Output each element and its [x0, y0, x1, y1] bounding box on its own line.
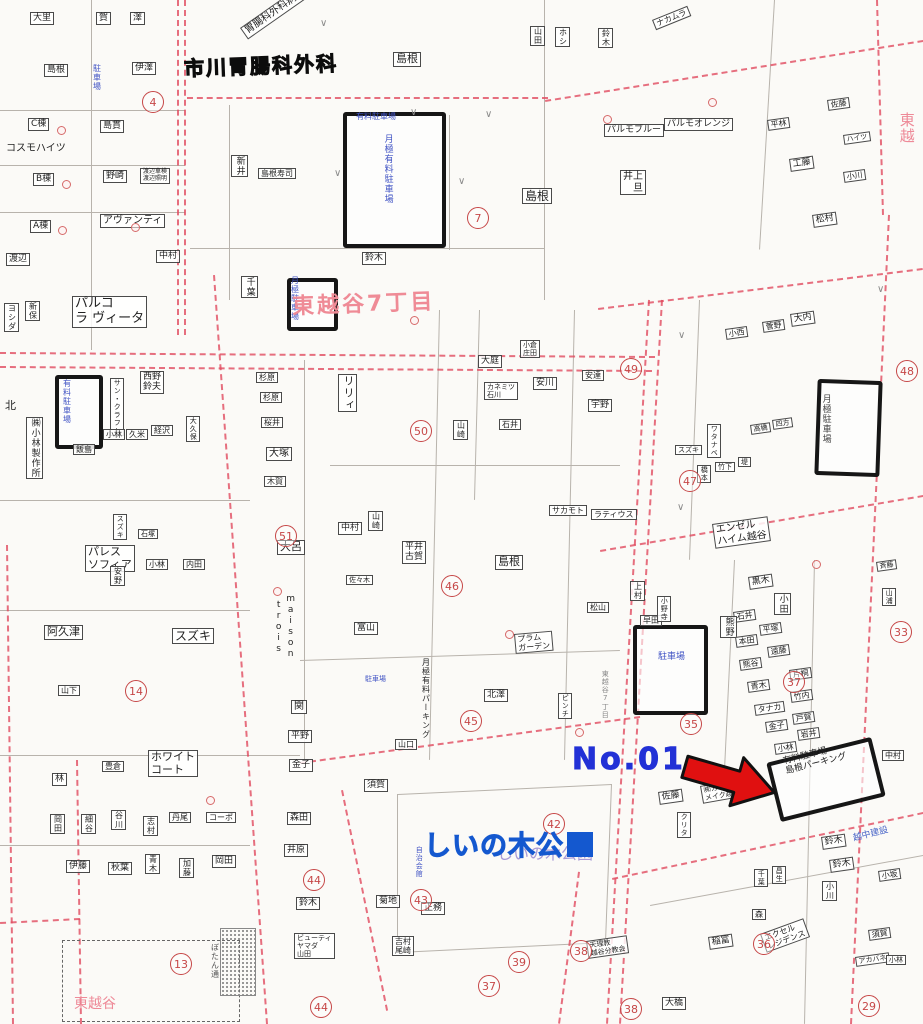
map-label: 渡辺 [6, 253, 30, 266]
minor-street-line [398, 784, 612, 795]
hydrant-symbol [206, 796, 215, 805]
map-label: 渡辺車検渡辺照明 [140, 168, 170, 184]
park-annotation-text: しいの木公 [424, 831, 564, 862]
map-label: 平野 [288, 730, 312, 743]
minor-street-line [330, 465, 620, 466]
road-dashed-line [187, 97, 548, 99]
circled-block-number: 45 [460, 710, 482, 732]
minor-street-line [0, 845, 250, 846]
map-label: 細谷 [81, 814, 96, 834]
map-label: 松山 [587, 602, 609, 613]
map-label: 安川 [533, 377, 557, 390]
map-label: 吉村尾崎 [392, 936, 414, 956]
road-dashed-line [876, 0, 884, 215]
hydrant-symbol [708, 98, 717, 107]
map-label: 丹尾 [169, 812, 191, 823]
map-label: 月極駐車場 [820, 394, 831, 444]
minor-street-line [689, 300, 700, 560]
map-label: 久米 [126, 429, 148, 440]
map-label: ラティウス [591, 509, 637, 520]
map-label: コーポ [206, 812, 236, 823]
residential-map: 大里賀澤島根伊澤駐車場島貫C棟コスモハイツB棟野崎渡辺車検渡辺照明A棟アヴァンテ… [0, 0, 923, 1024]
map-label: サン・クラフト [110, 378, 124, 436]
map-label: maison [285, 594, 296, 660]
map-label: 大久保 [186, 416, 200, 442]
map-label: サカモト [549, 505, 587, 516]
map-label: 石塚 [138, 529, 158, 539]
chevron-mark: ∨ [458, 176, 465, 187]
map-label: エンゼルハイム越谷 [712, 516, 771, 548]
map-label: ビューティヤマダ山田 [294, 933, 335, 959]
map-label: スズキ [113, 514, 127, 540]
map-label: 木賀 [264, 476, 286, 487]
chevron-mark: ∨ [877, 284, 884, 295]
map-label: プラムガーデン [514, 631, 554, 655]
map-label: リリィ [338, 374, 357, 412]
map-label: 駐車場 [92, 64, 101, 91]
map-label: カネミツ石川 [484, 382, 518, 400]
map-label: 自治会館 [415, 846, 423, 878]
map-label: ヨシダ [4, 303, 19, 332]
map-label: 島根 [522, 188, 552, 204]
road-dashed-line [0, 366, 652, 372]
map-label: 小林 [103, 429, 125, 440]
road-dashed-line [213, 275, 268, 1024]
circled-block-number: 38 [620, 998, 642, 1020]
map-label: 松村 [812, 212, 838, 228]
map-label: 関 [291, 700, 307, 714]
map-label: 月極有料パーキング [421, 658, 430, 739]
map-label: スズキ [172, 628, 214, 644]
map-label: 平林 [767, 117, 790, 131]
map-label: 中村 [338, 522, 362, 535]
minor-street-line [0, 212, 185, 213]
map-label: 中村 [156, 250, 180, 263]
minor-street-line [0, 165, 185, 166]
map-label: 山崎 [368, 511, 383, 531]
map-label: 大橋 [662, 997, 686, 1010]
map-label: trois [273, 600, 284, 655]
map-label: 菅野 [762, 319, 785, 333]
hydrant-symbol [58, 226, 67, 235]
minor-street-line [0, 500, 250, 501]
map-label: 鈴木 [362, 252, 386, 265]
circled-block-number: 46 [441, 575, 463, 597]
hydrant-symbol [812, 560, 821, 569]
map-label: 山田 [530, 26, 545, 46]
map-label: 島根 [44, 64, 68, 77]
road-dashed-line [0, 352, 655, 358]
map-label: タナカ [754, 701, 785, 717]
map-label: ホワイトコート [148, 750, 198, 777]
map-label: 富山 [354, 622, 378, 635]
map-label: 須賀 [868, 927, 891, 941]
red-arrow-icon [674, 739, 786, 820]
map-label: 谷川 [111, 810, 126, 830]
map-label: 桜井 [261, 417, 283, 428]
circled-block-number: 43 [410, 889, 432, 911]
map-label: ぼたん通 [210, 943, 219, 979]
hydrant-symbol [410, 316, 419, 325]
map-label: スズキ [675, 445, 702, 455]
minor-street-line [300, 650, 620, 661]
map-label: 金子 [289, 759, 313, 772]
circled-block-number: 13 [170, 953, 192, 975]
map-label: パルモブルー [604, 124, 664, 137]
map-label: 高橋 [750, 422, 771, 435]
map-label: 鈴木 [829, 857, 855, 873]
map-label: 東越谷 [74, 996, 116, 1013]
map-label: 岡田 [212, 855, 236, 868]
map-label: クリタ [677, 812, 691, 838]
map-label: 佐藤 [827, 97, 850, 111]
map-label: 山崎 [453, 420, 468, 440]
chevron-mark: ∨ [334, 168, 341, 179]
map-label: 鈴木 [296, 897, 320, 910]
minor-street-line [449, 115, 450, 250]
map-label: 杉原 [260, 392, 282, 403]
map-label: 宇野 [588, 399, 612, 412]
parking-lot-outline [343, 112, 446, 248]
map-label: 堤 [738, 457, 751, 467]
map-label: 山浦 [882, 588, 896, 606]
hydrant-symbol [603, 115, 612, 124]
circled-block-number: 33 [890, 621, 912, 643]
minor-street-line [474, 310, 480, 500]
map-label: 井原 [284, 844, 308, 857]
clinic-annotation: 市川胃腸科外科 [184, 47, 339, 81]
map-label: 鈴木 [821, 834, 847, 850]
no01-marker-label: No.01 [572, 742, 686, 777]
map-label: 阿久津 [44, 625, 83, 640]
map-label: 森田 [287, 812, 311, 825]
map-label: 大内 [790, 311, 816, 327]
circled-block-number: 44 [310, 996, 332, 1018]
circled-block-number: 39 [508, 951, 530, 973]
minor-street-line [605, 784, 612, 942]
map-label: 林 [52, 773, 67, 786]
map-label: ピンチ [558, 693, 572, 719]
map-label: 大里 [30, 12, 54, 25]
chevron-mark: ∨ [485, 109, 492, 120]
map-label: B棟 [33, 173, 54, 186]
map-label: 石井 [499, 419, 521, 430]
map-label: 小倉庄田 [520, 340, 540, 358]
map-label: 有料駐車場 [62, 379, 71, 424]
map-label: 東越谷7丁目 [601, 670, 609, 719]
map-label: ワタナベ [707, 424, 721, 458]
map-label: 上村 [630, 581, 645, 601]
map-label: ハイツ [843, 131, 871, 145]
hydrant-symbol [273, 587, 282, 596]
road-dashed-line [177, 0, 179, 335]
map-label: 黒木 [748, 574, 774, 590]
map-label: 伊藤 [66, 860, 90, 873]
map-label: 平塚 [759, 622, 782, 636]
hydrant-symbol [575, 728, 584, 737]
map-label: ㈱小林製作所 [26, 417, 43, 479]
map-label: A棟 [30, 220, 51, 233]
map-label: 安野 [110, 566, 125, 586]
map-label: 大塚 [266, 447, 292, 461]
minor-street-line [190, 248, 545, 249]
map-label: 山口 [395, 739, 417, 750]
map-label: 工藤 [789, 156, 815, 172]
map-label: 島根 [495, 555, 523, 570]
minor-street-line [429, 310, 440, 760]
circled-block-number: 4 [142, 91, 164, 113]
map-label: 野崎 [103, 170, 127, 183]
circled-block-number: 38 [570, 940, 592, 962]
map-label: 東越 [897, 112, 915, 144]
map-label: 越中建設 [852, 825, 890, 844]
map-label: 島貫 [100, 120, 124, 133]
circled-block-number: 48 [896, 360, 918, 382]
map-label: 森 [752, 909, 766, 920]
hydrant-symbol [131, 223, 140, 232]
chevron-mark: ∨ [320, 18, 327, 29]
map-label: 平井古賀 [402, 541, 426, 564]
map-label: 豊倉 [102, 761, 124, 772]
map-label: 島根 [393, 52, 421, 67]
park-annotation-block [567, 832, 593, 857]
map-label: 駐車場 [658, 652, 685, 663]
circled-block-number: 50 [410, 420, 432, 442]
map-label: 小林 [886, 955, 906, 965]
map-label: 伊澤 [132, 62, 156, 75]
map-label: パルモオレンジ [664, 118, 733, 131]
map-label: アカバネ [855, 952, 890, 967]
circled-block-number: 51 [275, 525, 297, 547]
map-label: 志村 [143, 816, 158, 836]
map-label: 岡田 [50, 814, 65, 834]
circled-block-number: 49 [620, 358, 642, 380]
map-label: 遠藤 [767, 644, 790, 658]
map-label: 戸賀 [792, 711, 815, 725]
map-label: 須賀 [364, 779, 388, 792]
map-label: 月極有料駐車場 [382, 134, 393, 204]
hydrant-symbol [62, 180, 71, 189]
circled-block-number: 14 [125, 680, 147, 702]
map-label: ナカムラ [652, 6, 691, 31]
circled-block-number: 44 [303, 869, 325, 891]
road-dashed-line [184, 0, 186, 335]
road-dashed-line [545, 40, 923, 102]
map-label: 井上 旦 [620, 170, 646, 195]
map-label: 胃腸科外科病院 [240, 0, 310, 39]
chevron-mark: ∨ [678, 330, 685, 341]
road-dashed-line [850, 215, 890, 1024]
map-label: 山下 [58, 685, 80, 696]
map-label: 秋葉 [108, 862, 132, 875]
map-label: 大庭 [478, 355, 502, 368]
map-label: 西野鈴夫 [140, 371, 164, 394]
map-label: 中村 [882, 750, 904, 761]
map-label: 青木 [145, 854, 160, 874]
map-label: 小林 [146, 559, 168, 570]
map-label: 澤 [130, 12, 145, 25]
map-label: 千葉 [754, 869, 768, 887]
map-label: 有料駐車場 [356, 112, 396, 121]
hydrant-symbol [57, 126, 66, 135]
map-label: 北澤 [484, 689, 508, 702]
map-label: 杉原 [256, 372, 278, 383]
map-label: 昌生 [772, 866, 786, 884]
map-label: 小川 [822, 881, 837, 901]
map-label: 千葉 [241, 276, 258, 298]
map-label: 小西 [725, 326, 748, 340]
circled-block-number: 47 [679, 470, 701, 492]
map-label: 島根寿司 [258, 168, 296, 179]
map-label: 小田 [774, 593, 791, 615]
map-label: コスモハイツ [6, 143, 66, 155]
district-street-label: 東越谷7丁目 [291, 284, 435, 321]
map-label: 熊谷 [739, 657, 762, 671]
circled-block-number: 7 [467, 207, 489, 229]
hydrant-symbol [505, 630, 514, 639]
map-label: 経沢 [151, 425, 173, 436]
map-label: 岩井 [797, 727, 820, 741]
road-dashed-line [6, 545, 14, 1024]
minor-street-line [397, 794, 398, 952]
minor-street-line [0, 610, 250, 611]
parking-lot-outline [633, 625, 708, 715]
map-label: 小川 [843, 169, 866, 183]
map-label: 熊野 [720, 616, 737, 638]
map-label: 北 [5, 400, 16, 413]
map-label: 賀 [96, 12, 111, 25]
map-label: 飯島 [73, 444, 95, 455]
map-label: ホシ [555, 27, 570, 47]
circled-block-number: 35 [680, 713, 702, 735]
map-label: 金子 [765, 719, 788, 733]
map-label: 鈴木 [598, 28, 613, 48]
map-label: 駐車場 [365, 675, 386, 683]
map-label: 菊地 [376, 895, 400, 908]
map-label: 小坂 [878, 868, 901, 882]
map-label: 新井 [231, 155, 248, 177]
map-label: パルコラ ヴィータ [72, 296, 147, 328]
map-label: 青木 [747, 679, 770, 693]
circled-block-number: 37 [478, 975, 500, 997]
map-label: 斉藤 [876, 559, 897, 572]
map-label: 内田 [183, 559, 205, 570]
chevron-mark: ∨ [677, 502, 684, 513]
map-label: 竹下 [715, 462, 735, 472]
map-label: 小野寺 [657, 596, 671, 622]
road-dashed-line [598, 268, 923, 310]
map-label: C棟 [28, 118, 49, 131]
map-label: 稲冨 [708, 934, 734, 950]
map-label: 新保 [25, 301, 40, 321]
circled-block-number: 29 [858, 995, 880, 1017]
map-label: 加藤 [179, 858, 194, 878]
hatched-area [220, 928, 256, 996]
park-annotation: しいの木公 [424, 824, 593, 863]
map-label: 四方 [772, 417, 793, 430]
circled-block-number: 36 [753, 933, 775, 955]
map-label: 安達 [582, 370, 604, 381]
chevron-mark: ∨ [410, 107, 417, 118]
map-label: 本田 [735, 634, 758, 648]
minor-street-line [229, 105, 230, 300]
circled-block-number: 37 [783, 671, 805, 693]
map-label: 佐々木 [346, 575, 373, 585]
minor-street-line [724, 560, 735, 770]
